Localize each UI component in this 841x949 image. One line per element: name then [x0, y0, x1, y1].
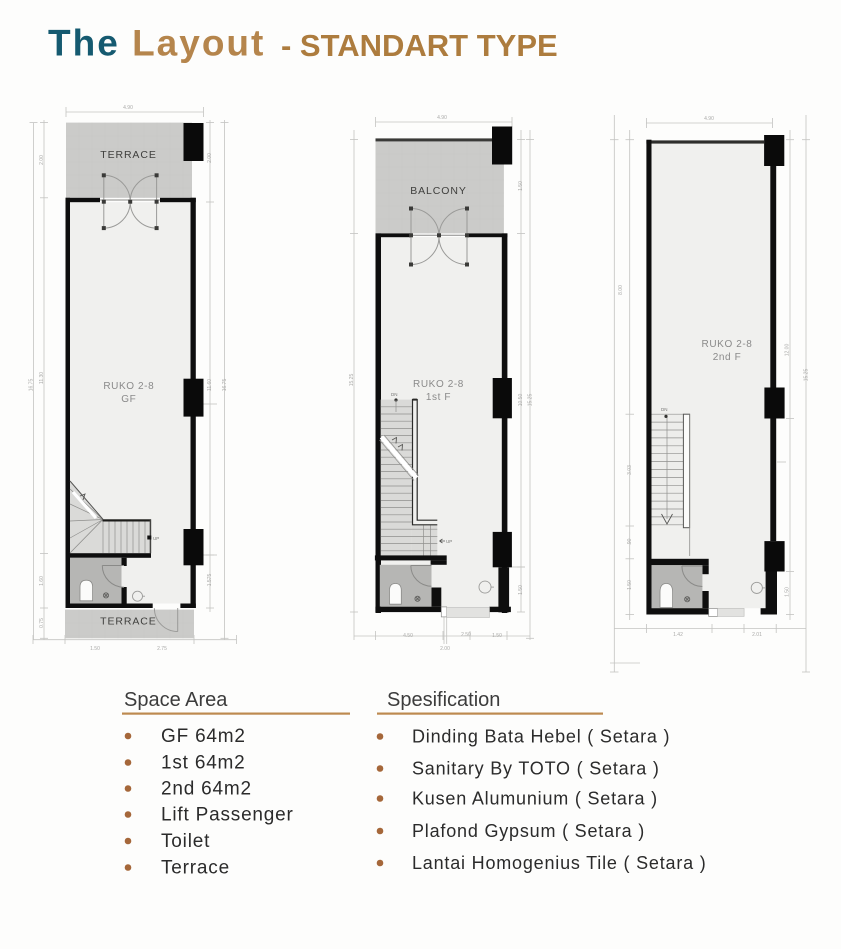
- svg-text:Terrace: Terrace: [161, 858, 230, 879]
- svg-text:Dinding Bata Hebel ( Setara ): Dinding Bata Hebel ( Setara ): [412, 727, 670, 747]
- svg-text:1st 64m2: 1st 64m2: [161, 753, 246, 774]
- svg-text:1.50: 1.50: [785, 587, 791, 597]
- svg-text:0.75: 0.75: [39, 618, 45, 628]
- svg-text:10.50: 10.50: [518, 394, 524, 407]
- svg-text:Space Area: Space Area: [124, 689, 228, 711]
- svg-text:Spesification: Spesification: [387, 689, 500, 711]
- svg-text:The Layout: The Layout: [48, 23, 265, 64]
- svg-text:4.90: 4.90: [123, 105, 133, 111]
- svg-text:DN: DN: [661, 407, 668, 412]
- svg-text:2.50: 2.50: [461, 632, 471, 638]
- svg-text:1.50: 1.50: [627, 580, 633, 590]
- svg-text:4.90: 4.90: [704, 116, 714, 122]
- svg-text:1.50: 1.50: [518, 585, 524, 595]
- svg-text:2.75: 2.75: [157, 646, 167, 652]
- svg-text:16.75: 16.75: [222, 379, 228, 392]
- svg-text:1.50: 1.50: [492, 633, 502, 639]
- svg-text:12.00: 12.00: [785, 344, 791, 357]
- svg-text:11.30: 11.30: [39, 372, 45, 384]
- svg-text:8.00: 8.00: [618, 285, 624, 295]
- svg-text:DN: DN: [391, 392, 398, 397]
- svg-text:BALCONY: BALCONY: [410, 185, 466, 197]
- svg-text:2.01: 2.01: [752, 632, 762, 638]
- svg-text:GF 64m2: GF 64m2: [161, 726, 246, 747]
- svg-text:UP: UP: [446, 539, 452, 544]
- svg-text:2.00: 2.00: [440, 646, 450, 652]
- svg-text:.90: .90: [627, 538, 633, 545]
- svg-text:Lift Passenger: Lift Passenger: [161, 805, 294, 826]
- svg-text:4.90: 4.90: [437, 115, 447, 121]
- svg-text:Plafond Gypsum ( Setara ): Plafond Gypsum ( Setara ): [412, 821, 645, 841]
- svg-text:- STANDART TYPE: - STANDART TYPE: [281, 28, 558, 63]
- svg-text:1.50: 1.50: [518, 181, 524, 191]
- svg-text:RUKO 2-8: RUKO 2-8: [103, 381, 154, 392]
- svg-text:11.60: 11.60: [207, 379, 213, 391]
- svg-text:15.25: 15.25: [804, 369, 810, 382]
- svg-text:TERRACE: TERRACE: [100, 616, 156, 628]
- svg-text:Kusen Alumunium ( Setara ): Kusen Alumunium ( Setara ): [412, 789, 658, 809]
- svg-text:TERRACE: TERRACE: [100, 149, 156, 161]
- svg-text:1.50: 1.50: [90, 646, 100, 652]
- svg-text:2nd 64m2: 2nd 64m2: [161, 779, 252, 800]
- svg-text:1.575: 1.575: [207, 574, 213, 587]
- svg-text:4.50: 4.50: [403, 633, 413, 639]
- svg-text:GF: GF: [121, 394, 136, 405]
- svg-text:2.00: 2.00: [207, 153, 213, 163]
- svg-text:Toilet: Toilet: [161, 831, 210, 852]
- svg-text:UP: UP: [153, 536, 159, 541]
- svg-text:1.60: 1.60: [39, 576, 45, 586]
- svg-text:1st F: 1st F: [426, 392, 451, 403]
- svg-text:Sanitary By TOTO ( Setara ): Sanitary By TOTO ( Setara ): [412, 759, 660, 779]
- svg-text:15.25: 15.25: [528, 394, 534, 407]
- svg-text:Lantai Homogenius Tile ( Setar: Lantai Homogenius Tile ( Setara ): [412, 853, 707, 873]
- svg-text:1.42: 1.42: [673, 632, 683, 638]
- svg-text:RUKO 2-8: RUKO 2-8: [702, 339, 753, 350]
- svg-text:16.75: 16.75: [29, 379, 35, 392]
- svg-text:2.00: 2.00: [39, 155, 45, 165]
- svg-text:15.25: 15.25: [349, 374, 355, 387]
- svg-text:RUKO 2-8: RUKO 2-8: [413, 379, 464, 390]
- svg-text:3.03: 3.03: [627, 465, 633, 475]
- svg-text:2nd F: 2nd F: [713, 352, 742, 363]
